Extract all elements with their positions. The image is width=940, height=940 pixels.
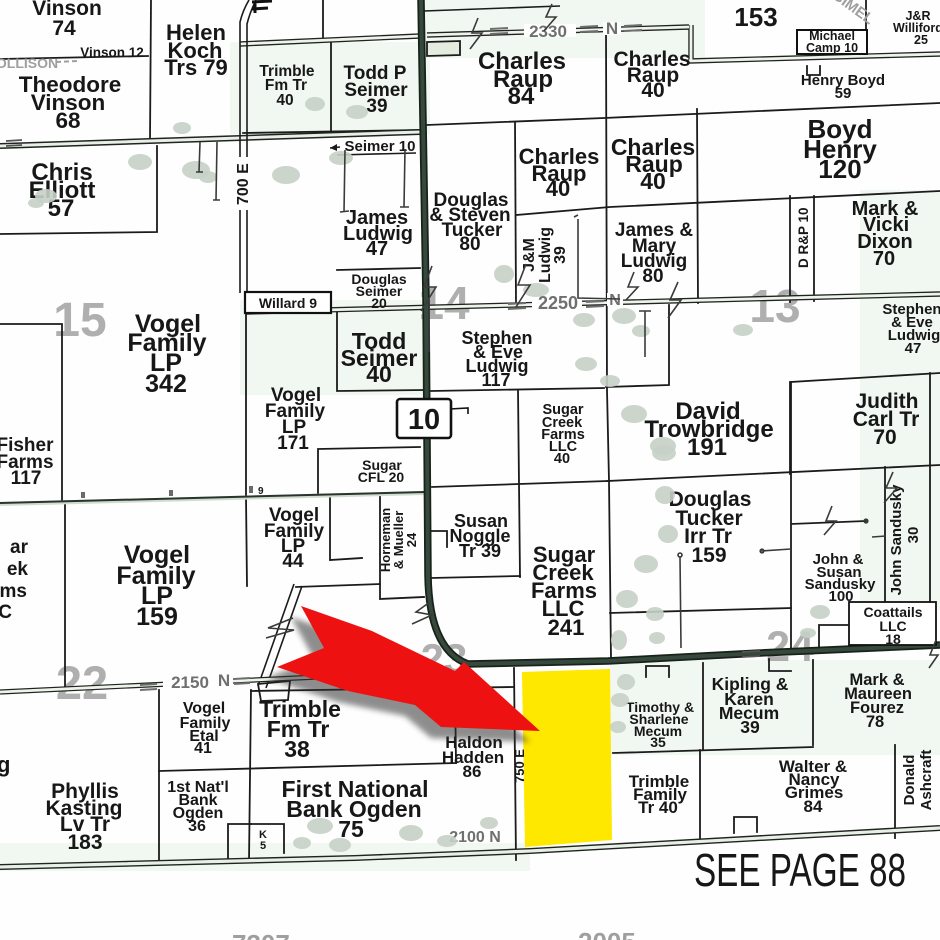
svg-text:35: 35 — [650, 734, 666, 750]
svg-text:183: 183 — [67, 831, 102, 854]
svg-text:40: 40 — [641, 79, 664, 102]
svg-text:2005: 2005 — [578, 927, 636, 940]
svg-text:117: 117 — [481, 370, 510, 390]
svg-text:191: 191 — [687, 434, 727, 461]
svg-text:39: 39 — [740, 717, 760, 737]
svg-text:36: 36 — [188, 818, 206, 835]
svg-text:241: 241 — [548, 615, 585, 640]
svg-text:47: 47 — [366, 238, 388, 260]
svg-text:159: 159 — [691, 544, 726, 567]
svg-text:Trs 79: Trs 79 — [164, 55, 228, 80]
svg-text:N: N — [606, 19, 618, 38]
svg-text:75: 75 — [338, 816, 364, 842]
svg-text:59: 59 — [835, 85, 852, 102]
svg-text:41: 41 — [194, 740, 212, 757]
svg-text:C: C — [0, 602, 12, 623]
svg-text:47: 47 — [905, 340, 922, 357]
svg-text:N: N — [218, 671, 230, 690]
svg-text:OLLISON: OLLISON — [0, 55, 58, 71]
svg-text:2100 N: 2100 N — [449, 829, 501, 846]
svg-text:153: 153 — [734, 2, 777, 32]
svg-text:44: 44 — [282, 551, 304, 572]
svg-text:70: 70 — [873, 426, 896, 449]
svg-text:N: N — [609, 292, 621, 309]
svg-text:86: 86 — [463, 762, 482, 781]
svg-text:78: 78 — [866, 713, 884, 731]
svg-text:70: 70 — [873, 248, 895, 270]
svg-text:100: 100 — [828, 588, 853, 605]
svg-text:18: 18 — [885, 631, 901, 647]
svg-text:Tr 40: Tr 40 — [638, 798, 678, 817]
svg-text:g: g — [0, 752, 10, 777]
svg-text:7307: 7307 — [232, 929, 290, 940]
svg-text:ek: ek — [7, 559, 29, 580]
svg-text:40: 40 — [366, 361, 392, 387]
svg-text:171: 171 — [277, 433, 309, 454]
svg-text:D R&P 10: D R&P 10 — [796, 207, 811, 268]
svg-text:38: 38 — [284, 736, 310, 762]
svg-text:9: 9 — [258, 486, 264, 497]
svg-text:2150: 2150 — [171, 673, 209, 692]
svg-text:2330: 2330 — [529, 22, 567, 41]
svg-text:ar: ar — [10, 537, 29, 558]
svg-text:CFL 20: CFL 20 — [358, 469, 405, 485]
svg-text:20: 20 — [371, 295, 387, 311]
svg-text:39: 39 — [552, 246, 569, 264]
svg-text:Donald: Donald — [901, 755, 918, 806]
svg-text:25: 25 — [914, 33, 928, 47]
svg-text:84: 84 — [804, 797, 823, 816]
svg-text:13: 13 — [749, 280, 800, 332]
svg-text:342: 342 — [145, 370, 187, 398]
svg-text:10: 10 — [408, 404, 440, 436]
svg-text:Camp 10: Camp 10 — [806, 41, 858, 55]
svg-text:40: 40 — [546, 176, 570, 201]
svg-text:68: 68 — [55, 108, 80, 133]
svg-text:159: 159 — [136, 603, 178, 631]
svg-text:J&M: J&M — [521, 238, 538, 272]
svg-text:750 E: 750 E — [512, 749, 527, 783]
svg-text:22: 22 — [56, 656, 108, 709]
svg-text:80: 80 — [642, 266, 663, 287]
svg-text:John Sandusky: John Sandusky — [888, 484, 905, 596]
svg-text:700 E: 700 E — [235, 163, 252, 205]
svg-text:Tr 39: Tr 39 — [459, 541, 501, 561]
svg-text:Ashcraft: Ashcraft — [918, 750, 935, 811]
svg-text:SEE PAGE 88: SEE PAGE 88 — [694, 844, 906, 896]
svg-text:Willard 9: Willard 9 — [259, 295, 317, 311]
svg-text:117: 117 — [11, 468, 42, 489]
svg-text:74: 74 — [52, 17, 76, 40]
svg-text:ms: ms — [0, 581, 27, 602]
svg-text:39: 39 — [366, 96, 387, 117]
svg-text:80: 80 — [459, 234, 480, 255]
svg-text:24: 24 — [404, 532, 419, 547]
svg-text:40: 40 — [276, 92, 293, 109]
svg-text:Vinson 12: Vinson 12 — [80, 45, 144, 60]
svg-text:40: 40 — [640, 168, 666, 194]
svg-text:5: 5 — [260, 840, 266, 852]
svg-text:30: 30 — [905, 527, 922, 544]
svg-text:2250: 2250 — [538, 293, 578, 313]
svg-text:40: 40 — [554, 451, 570, 467]
svg-text:120: 120 — [818, 154, 861, 184]
svg-text:84: 84 — [508, 83, 535, 110]
